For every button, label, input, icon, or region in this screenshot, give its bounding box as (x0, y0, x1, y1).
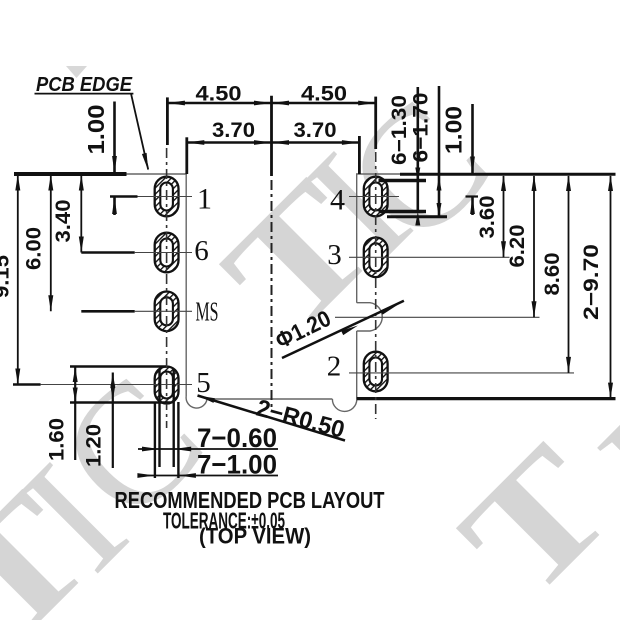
svg-text:4: 4 (330, 184, 345, 217)
svg-text:1.00: 1.00 (83, 105, 109, 155)
svg-text:3.40: 3.40 (52, 200, 75, 243)
svg-text:6−1.30: 6−1.30 (388, 95, 411, 165)
svg-text:4.50: 4.50 (301, 83, 347, 106)
svg-text:8.60: 8.60 (541, 253, 564, 296)
svg-text:5: 5 (196, 367, 211, 399)
svg-text:1: 1 (197, 183, 212, 216)
svg-text:3: 3 (327, 239, 342, 271)
svg-text:1.60: 1.60 (46, 418, 69, 461)
svg-text:6.00: 6.00 (23, 227, 46, 270)
svg-text:3.70: 3.70 (294, 119, 337, 142)
svg-text:6: 6 (194, 235, 209, 267)
svg-text:1.20: 1.20 (83, 424, 106, 467)
svg-text:MS: MS (196, 297, 219, 327)
svg-text:9.15: 9.15 (0, 255, 14, 298)
svg-text:2: 2 (327, 351, 342, 383)
svg-text:1.00: 1.00 (441, 106, 467, 154)
svg-text:4.50: 4.50 (196, 83, 242, 106)
svg-text:(TOP VIEW): (TOP VIEW) (199, 524, 311, 549)
svg-text:2−9.70: 2−9.70 (580, 244, 603, 320)
svg-text:3.60: 3.60 (476, 196, 499, 239)
svg-text:7−1.00: 7−1.00 (197, 450, 277, 480)
svg-text:7−0.60: 7−0.60 (197, 423, 277, 453)
svg-text:6−1.70: 6−1.70 (410, 93, 433, 163)
svg-text:3.70: 3.70 (212, 119, 255, 142)
svg-text:6.20: 6.20 (506, 225, 529, 268)
